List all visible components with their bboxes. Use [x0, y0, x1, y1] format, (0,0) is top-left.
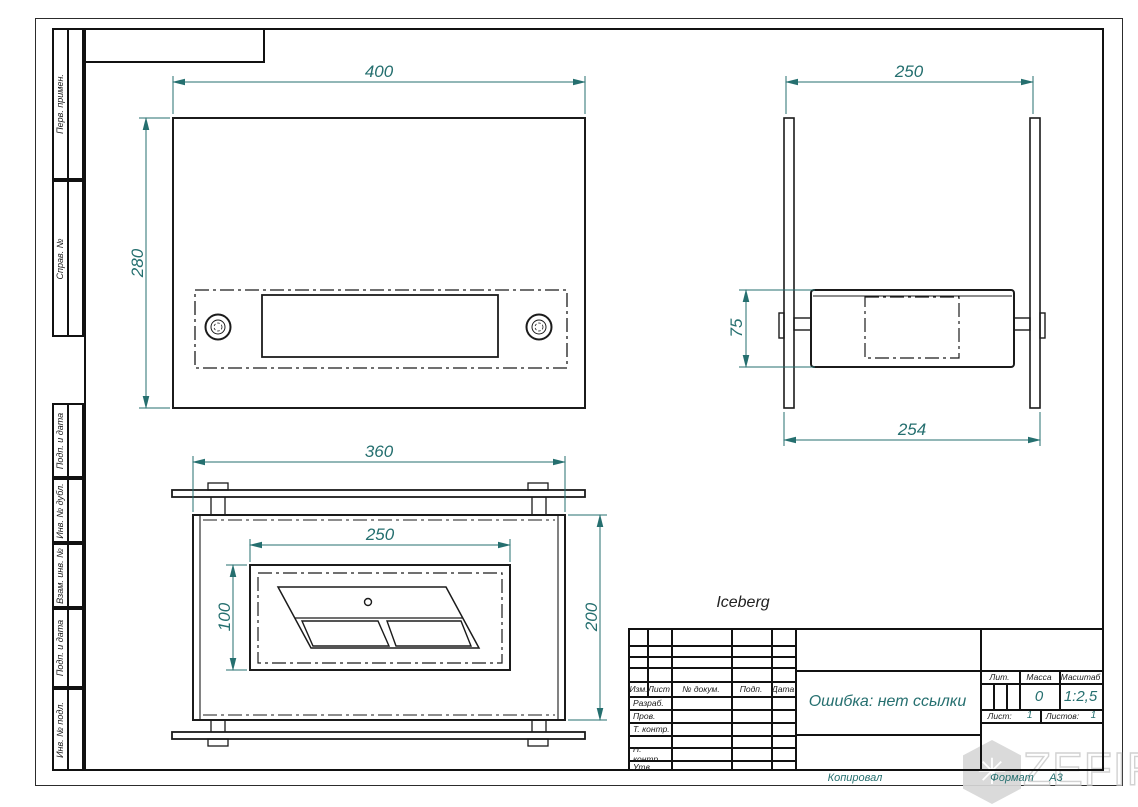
side-view: 250 75 254: [727, 62, 1045, 446]
tb-mass-value: 0: [1019, 683, 1059, 709]
tb-sheets-cell: Листов: 1: [1040, 709, 1102, 722]
tb-row-razrab: Разраб.: [630, 696, 671, 709]
dim-top-width: 360: [365, 442, 394, 461]
mount-pin-left: [779, 313, 811, 338]
tb-header-docnum: № докум.: [671, 681, 731, 696]
tb-sheet-value: 1: [1027, 710, 1033, 721]
tb-sheets-value: 1: [1091, 710, 1097, 721]
dim-top-depth: 200: [582, 602, 601, 632]
title-block: Изм. Лист № докум. Подп. Дата Разраб. Пр…: [628, 628, 1104, 771]
burner-slot-right: [387, 621, 471, 646]
tb-row-utv: Утв.: [630, 760, 671, 773]
front-view: 400 280: [128, 62, 585, 408]
format-value: А3: [1049, 772, 1062, 784]
top-view: 360 250 100 200: [172, 442, 607, 746]
dim-side-height: 75: [727, 318, 746, 337]
dim-side-width: 250: [894, 62, 924, 81]
tb-sheet-label: Лист:: [988, 711, 1012, 721]
tb-header-izm: Изм.: [630, 681, 647, 696]
dim-front-width: 400: [365, 62, 394, 81]
dim-front-height: 280: [128, 248, 147, 278]
burner-box-side: [811, 290, 1014, 367]
product-name-label: Iceberg: [716, 594, 769, 612]
glass-panel-bottom-edge: [172, 732, 585, 739]
tb-sheets-label: Листов:: [1046, 711, 1079, 721]
tb-doc-name: Ошибка: нет ссылки: [795, 670, 980, 734]
tb-scale-label: Масштаб: [1059, 670, 1102, 683]
tb-row-nkontr: Н. контр.: [630, 747, 671, 760]
glass-panel-top-edge: [172, 490, 585, 497]
tb-lit-label: Лит.: [980, 670, 1019, 683]
tb-header-list: Лист: [647, 681, 671, 696]
tb-scale-value: 1:2,5: [1059, 683, 1102, 709]
side-hidden-contour: [865, 297, 959, 358]
copied-by-label: Копировал: [828, 772, 883, 784]
filler-hole: [365, 599, 372, 606]
tb-header-data: Дата: [771, 681, 795, 696]
burner-slot-left: [302, 621, 389, 646]
front-burner-window: [262, 295, 498, 357]
screw-left: [206, 315, 231, 340]
dim-top-inner-width: 250: [365, 525, 395, 544]
tb-mass-label: Масса: [1019, 670, 1059, 683]
glass-panel-left: [784, 118, 794, 408]
front-panel-outline: [173, 118, 585, 408]
tb-row-tkontr: Т. контр.: [630, 722, 671, 735]
drawing-sheet: Перв. примен. Справ. № Подп. и дата Инв.…: [0, 0, 1138, 807]
format-label: Формат: [990, 772, 1034, 784]
tb-header-podp: Подп.: [731, 681, 771, 696]
tb-row-prov: Пров.: [630, 709, 671, 722]
tb-sheet-cell: Лист: 1: [980, 709, 1040, 722]
glass-panel-right: [1030, 118, 1040, 408]
dim-top-inner-depth: 100: [215, 602, 234, 631]
dim-side-outer: 254: [897, 420, 926, 439]
screw-right: [527, 315, 552, 340]
